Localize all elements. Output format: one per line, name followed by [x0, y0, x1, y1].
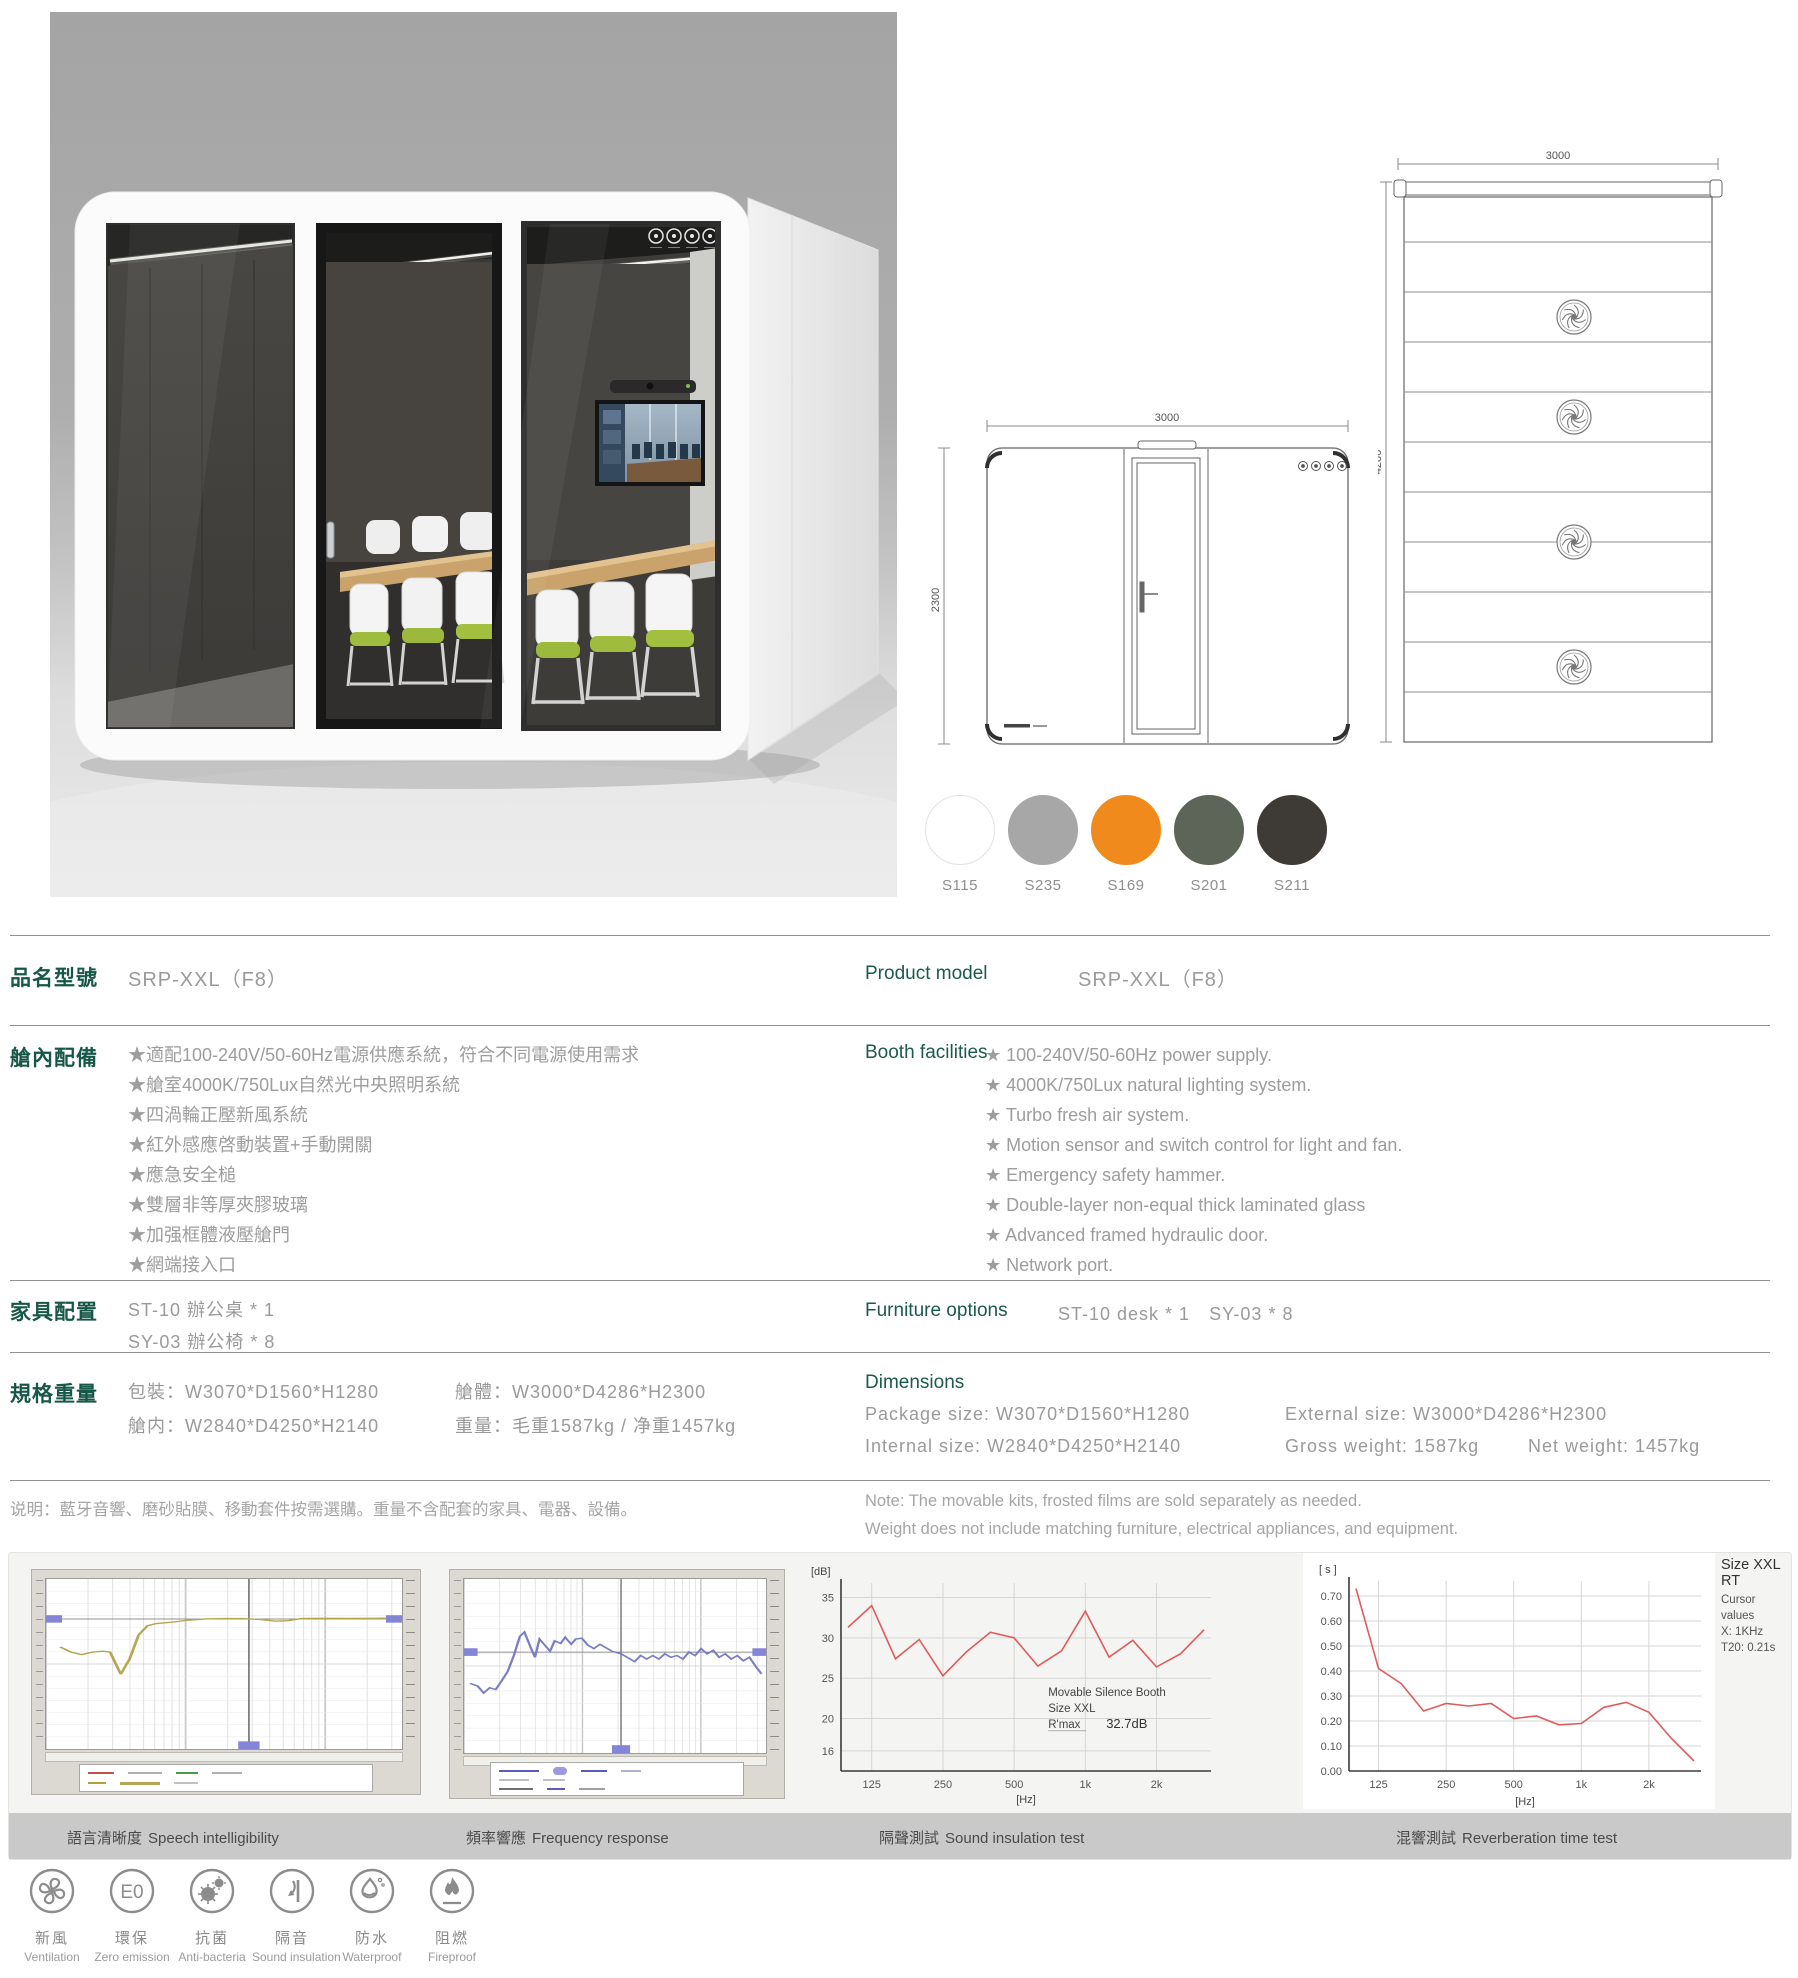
dim-package-en: Package size: W3070*D1560*H1280	[865, 1404, 1190, 1425]
svg-text:125: 125	[1369, 1779, 1387, 1791]
fan-icon	[29, 1868, 75, 1914]
plan-view-drawing: 3000 4286	[1378, 150, 1726, 750]
svg-text:0.70: 0.70	[1321, 1591, 1342, 1603]
caption-reverberation: 混響測試Reverberation time test	[1396, 1827, 1623, 1848]
swatch-code: S169	[1091, 877, 1161, 894]
furniture-line1-zh: ST-10 辦公桌 * 1	[128, 1296, 275, 1322]
svg-text:0.30: 0.30	[1321, 1691, 1342, 1703]
dimensions-label-en: Dimensions	[865, 1372, 964, 1394]
badge-label-zh: 環保	[92, 1927, 172, 1948]
pod-side-panel	[748, 198, 878, 760]
divider	[10, 1280, 1770, 1281]
badge-label-en: Zero emission	[92, 1950, 172, 1964]
svg-text:25: 25	[822, 1673, 834, 1685]
booth-item-zh: ★四渦輪正壓新風系統	[128, 1100, 639, 1130]
swatch-code: S235	[1008, 877, 1078, 894]
badge-label-zh: 阻燃	[412, 1927, 492, 1948]
booth-facilities-label-zh: 艙內配備	[10, 1042, 98, 1072]
swatch-s235: S235	[1008, 795, 1078, 894]
svg-text:125: 125	[863, 1779, 881, 1791]
badge-fireproof: 阻燃 Fireproof	[412, 1868, 492, 1964]
dim-package-zh: 包裝：W3070*D1560*H1280	[128, 1378, 379, 1404]
swatch-dot	[1174, 795, 1244, 865]
dim-external-en: External size: W3000*D4286*H2300	[1285, 1404, 1607, 1425]
color-swatches: S115 S235 S169 S201 S211	[925, 795, 1327, 894]
note-zh: 说明：藍牙音響、磨砂貼膜、移動套件按需選購。重量不含配套的家具、電器、設備。	[10, 1496, 637, 1520]
svg-text:16: 16	[822, 1746, 834, 1758]
dim-internal-zh: 艙内：W2840*D4250*H2140	[128, 1412, 379, 1438]
legend-box	[490, 1762, 744, 1796]
sound-insulation-icon	[269, 1868, 315, 1914]
booth-facilities-label-en: Booth facilities	[865, 1042, 988, 1064]
svg-text:0.00: 0.00	[1321, 1766, 1342, 1778]
product-spec-sheet: 3000 2300	[0, 0, 1798, 1978]
legend-title: Size XXL RT	[1721, 1557, 1791, 1589]
svg-text:500: 500	[1005, 1779, 1023, 1791]
divider	[10, 1480, 1770, 1481]
acoustic-charts-panel: 35302520161252505001k2k[dB][Hz]Movable S…	[8, 1552, 1792, 1860]
svg-text:35: 35	[822, 1593, 834, 1605]
speech-intelligibility-chart	[31, 1569, 421, 1795]
booth-item-zh: ★適配100-240V/50-60Hz電源供應系統，符合不同電源使用需求	[128, 1040, 639, 1070]
booth-item-zh: ★網端接入口	[128, 1250, 639, 1280]
booth-item-en: ★ Network port.	[985, 1250, 1402, 1280]
booth-facilities-list-en: ★ 100-240V/50-60Hz power supply. ★ 4000K…	[985, 1040, 1402, 1280]
badge-ventilation: 新風 Ventilation	[12, 1868, 92, 1964]
svg-text:0.10: 0.10	[1321, 1741, 1342, 1753]
caption-insulation: 隔聲測試Sound insulation test	[879, 1827, 1090, 1848]
right-tick-strip	[770, 1580, 779, 1750]
plot-area	[45, 1578, 403, 1750]
svg-text:0.20: 0.20	[1321, 1716, 1342, 1728]
dim-weight-zh: 重量：毛重1587kg / 净重1457kg	[455, 1412, 736, 1438]
booth-item-zh: ★艙室4000K/750Lux自然光中央照明系統	[128, 1070, 639, 1100]
badge-sound-insulation: 隔音 Sound insulation	[252, 1868, 332, 1964]
fireproof-icon	[429, 1868, 475, 1914]
badge-label-en: Fireproof	[412, 1950, 492, 1964]
furniture-label-en: Furniture options	[865, 1300, 1008, 1322]
product-model-label-en: Product model	[865, 963, 988, 985]
badge-anti-bacteria: 抗菌 Anti-bacteria	[172, 1868, 252, 1964]
booth-item-zh: ★應急安全槌	[128, 1160, 639, 1190]
booth-item-en: ★ Turbo fresh air system.	[985, 1100, 1402, 1130]
svg-text:Movable Silence Booth: Movable Silence Booth	[1048, 1687, 1166, 1699]
svg-text:Size XXL: Size XXL	[1048, 1703, 1096, 1715]
plot-area	[463, 1578, 767, 1754]
sound-insulation-chart: 35302520161252505001k2k[dB][Hz]Movable S…	[799, 1559, 1223, 1807]
left-tick-strip	[36, 1580, 43, 1746]
badge-label-zh: 防水	[332, 1927, 412, 1948]
plan-width-dim: 3000	[1546, 150, 1570, 162]
swatch-dot	[1257, 795, 1327, 865]
left-tick-strip	[454, 1580, 461, 1750]
booth-item-en: ★ 100-240V/50-60Hz power supply.	[985, 1040, 1402, 1070]
product-model-value-en: SRP-XXL（F8）	[1078, 963, 1238, 992]
svg-text:500: 500	[1505, 1779, 1523, 1791]
caption-speech: 語言清晰度Speech intelligibility	[67, 1827, 285, 1848]
svg-text:1k: 1k	[1576, 1779, 1588, 1791]
product-model-label-zh: 品名型號	[10, 962, 98, 992]
badge-label-zh: 新風	[12, 1927, 92, 1948]
plan-depth-dim: 4286	[1378, 450, 1384, 474]
furniture-value-en: ST-10 desk * 1 SY-03 * 8	[1058, 1300, 1293, 1326]
bacteria-icon	[189, 1868, 235, 1914]
elevation-width-dim: 3000	[1155, 412, 1179, 424]
legend-line: T20: 0.21s	[1721, 1640, 1791, 1656]
booth-item-en: ★ Motion sensor and switch control for l…	[985, 1130, 1402, 1160]
dim-internal-en: Internal size: W2840*D4250*H2140	[865, 1436, 1181, 1457]
chart-caption-band: 語言清晰度Speech intelligibility 頻率響應Frequenc…	[9, 1813, 1791, 1859]
e0-icon: E0	[109, 1868, 155, 1914]
dim-gross-en: Gross weight: 1587kg	[1285, 1436, 1479, 1457]
svg-text:250: 250	[934, 1779, 952, 1791]
svg-text:0.40: 0.40	[1321, 1666, 1342, 1678]
dim-net-en: Net weight: 1457kg	[1528, 1436, 1700, 1457]
note-en-line2: Weight does not include matching furnitu…	[865, 1520, 1458, 1539]
waterproof-icon	[349, 1868, 395, 1914]
svg-text:[ s ]: [ s ]	[1319, 1564, 1337, 1576]
product-photo	[50, 12, 897, 897]
right-tick-strip	[406, 1580, 415, 1746]
legend-box	[79, 1764, 374, 1792]
svg-text:E0: E0	[120, 1882, 143, 1903]
swatch-s201: S201	[1174, 795, 1244, 894]
reverberation-chart: 0.700.600.500.400.300.200.100.0012525050…	[1303, 1553, 1715, 1809]
swatch-s115: S115	[925, 795, 995, 894]
booth-facilities-list-zh: ★適配100-240V/50-60Hz電源供應系統，符合不同電源使用需求 ★艙室…	[128, 1040, 639, 1280]
booth-item-en: ★ 4000K/750Lux natural lighting system.	[985, 1070, 1402, 1100]
svg-text:2k: 2k	[1643, 1779, 1655, 1791]
booth-item-zh: ★紅外感應啓動裝置+手動開關	[128, 1130, 639, 1160]
front-elevation-drawing: 3000 2300	[930, 408, 1370, 756]
badge-waterproof: 防水 Waterproof	[332, 1868, 412, 1964]
badge-label-en: Anti-bacteria	[172, 1950, 252, 1964]
divider	[10, 935, 1770, 936]
note-en-line1: Note: The movable kits, frosted films ar…	[865, 1492, 1362, 1511]
booth-item-en: ★ Advanced framed hydraulic door.	[985, 1220, 1402, 1250]
scrollbar[interactable]	[45, 1752, 403, 1762]
swatch-s169: S169	[1091, 795, 1161, 894]
swatch-code: S115	[925, 877, 995, 894]
swatch-s211: S211	[1257, 795, 1327, 894]
svg-text:R'max: R'max	[1048, 1719, 1080, 1731]
svg-text:0.50: 0.50	[1321, 1641, 1342, 1653]
svg-text:[dB]: [dB]	[811, 1566, 831, 1578]
glass-door-panel	[316, 224, 503, 728]
legend-line: X: 1KHz	[1721, 1624, 1791, 1640]
booth-item-en: ★ Double-layer non-equal thick laminated…	[985, 1190, 1402, 1220]
dimensions-label-zh: 規格重量	[10, 1378, 98, 1408]
door-handle	[327, 522, 334, 558]
reverberation-legend: Size XXL RT Cursor values X: 1KHz T20: 0…	[1721, 1557, 1791, 1656]
elevation-height-dim: 2300	[930, 588, 942, 612]
svg-text:2k: 2k	[1151, 1779, 1163, 1791]
svg-text:0.60: 0.60	[1321, 1616, 1342, 1628]
tv-screen	[595, 400, 705, 486]
booth-item-zh: ★雙層非等厚夾膠玻璃	[128, 1190, 639, 1220]
dim-external-zh: 艙體：W3000*D4286*H2300	[455, 1378, 706, 1404]
svg-text:30: 30	[822, 1633, 834, 1645]
frequency-response-chart	[449, 1569, 785, 1799]
caption-frequency: 頻率響應Frequency response	[466, 1827, 675, 1848]
svg-text:[Hz]: [Hz]	[1016, 1794, 1036, 1806]
svg-text:250: 250	[1437, 1779, 1455, 1791]
svg-text:20: 20	[822, 1714, 834, 1726]
badge-label-zh: 隔音	[252, 1927, 332, 1948]
divider	[10, 1025, 1770, 1026]
badge-label-en: Sound insulation	[252, 1950, 332, 1964]
badge-zero-emission: E0 環保 Zero emission	[92, 1868, 172, 1964]
swatch-code: S201	[1174, 877, 1244, 894]
booth-item-en: ★ Emergency safety hammer.	[985, 1160, 1402, 1190]
legend-line: Cursor values	[1721, 1592, 1791, 1624]
swatch-dot	[1008, 795, 1078, 865]
booth-item-zh: ★加强框體液壓艙門	[128, 1220, 639, 1250]
furniture-line2-zh: SY-03 辦公椅 * 8	[128, 1328, 275, 1354]
svg-text:1k: 1k	[1080, 1779, 1092, 1791]
swatch-code: S211	[1257, 877, 1327, 894]
badge-label-en: Waterproof	[332, 1950, 412, 1964]
swatch-dot	[925, 795, 995, 865]
swatch-dot	[1091, 795, 1161, 865]
product-model-value: SRP-XXL（F8）	[128, 963, 288, 992]
svg-text:[Hz]: [Hz]	[1515, 1796, 1535, 1808]
feature-badges: 新風 Ventilation E0 環保 Zero emission	[12, 1868, 492, 1964]
svg-text:32.7dB: 32.7dB	[1106, 1716, 1147, 1731]
badge-label-en: Ventilation	[12, 1950, 92, 1964]
badge-label-zh: 抗菌	[172, 1927, 252, 1948]
furniture-label-zh: 家具配置	[10, 1296, 98, 1326]
